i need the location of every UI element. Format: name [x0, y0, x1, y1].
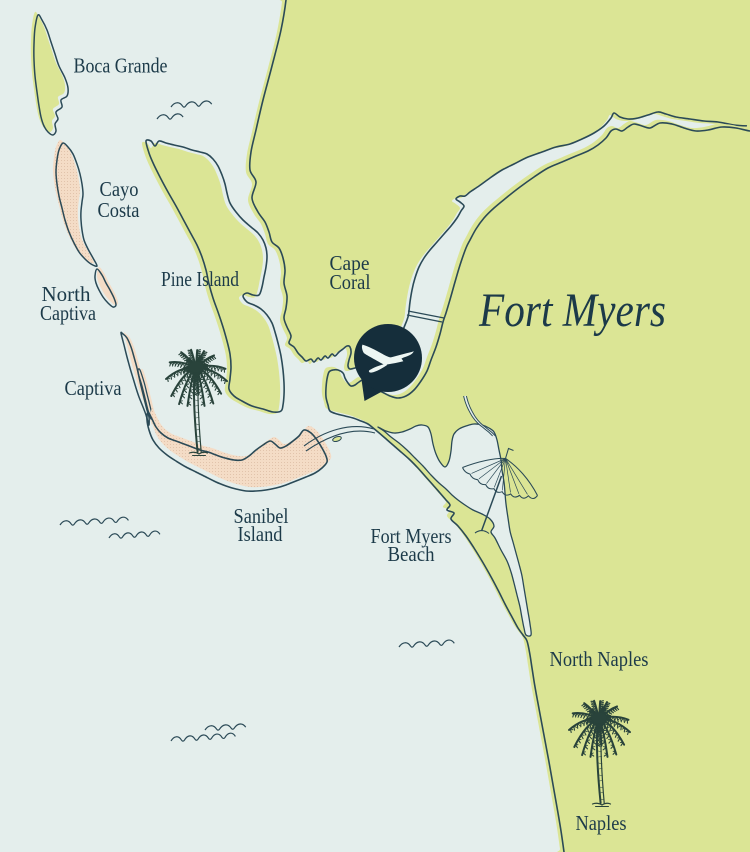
- svg-text:Island: Island: [238, 522, 283, 546]
- svg-text:Captiva: Captiva: [65, 376, 122, 400]
- svg-text:Beach: Beach: [388, 542, 435, 566]
- svg-text:Boca Grande: Boca Grande: [74, 54, 168, 78]
- svg-text:Coral: Coral: [330, 270, 371, 294]
- svg-text:Naples: Naples: [576, 811, 627, 835]
- svg-text:Pine Island: Pine Island: [161, 267, 239, 291]
- svg-text:Costa: Costa: [98, 198, 140, 222]
- svg-text:North Naples: North Naples: [550, 647, 649, 671]
- svg-text:Fort Myers: Fort Myers: [478, 284, 666, 337]
- svg-text:Captiva: Captiva: [40, 301, 96, 325]
